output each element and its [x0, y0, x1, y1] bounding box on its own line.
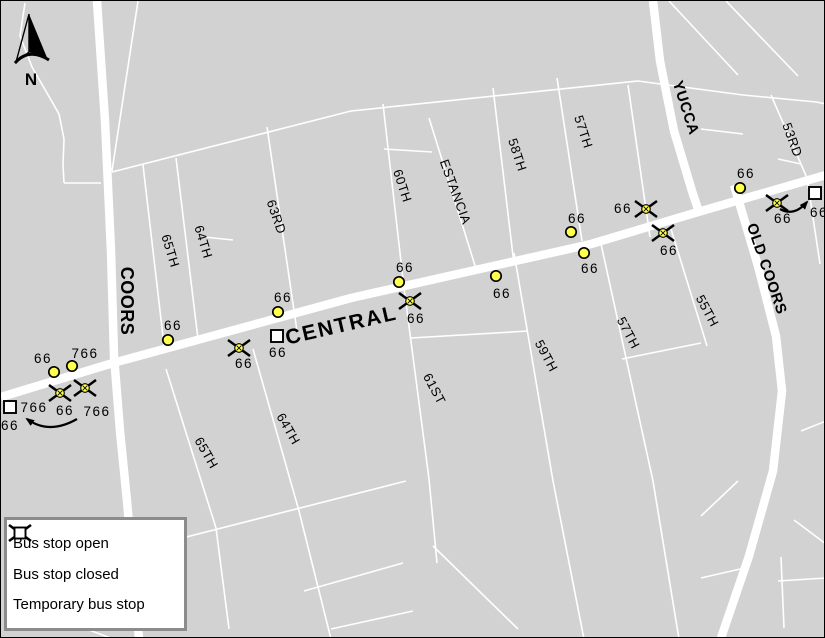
- route-label: 66: [274, 290, 292, 305]
- route-label: 66: [407, 311, 425, 326]
- bus-stop-temporary-marker: [809, 187, 821, 199]
- minor-street: [514, 253, 584, 638]
- legend-item-closed: Bus stop closed: [13, 566, 178, 583]
- route-label: 66: [774, 211, 792, 226]
- route-label: 66: [396, 260, 414, 275]
- minor-street: [778, 159, 801, 164]
- bus-stop-closed-marker: [74, 380, 96, 396]
- bus-stop-open-marker: [735, 183, 745, 193]
- bus-stop-open-marker: [566, 227, 576, 237]
- bus-stop-closed-marker: [228, 340, 250, 356]
- legend-label-temporary: Temporary bus stop: [13, 596, 145, 613]
- bus-stop-temporary-marker: [271, 330, 283, 342]
- street-label: 65TH: [158, 233, 182, 270]
- route-label: 766: [71, 346, 98, 361]
- legend-label-closed: Bus stop closed: [13, 566, 119, 583]
- route-label: 66: [235, 356, 253, 371]
- route-label: 66: [737, 166, 755, 181]
- minor-street: [304, 563, 403, 591]
- street-label: 59TH: [532, 337, 561, 374]
- legend-item-open: Bus stop open: [13, 535, 178, 552]
- bus-stop-open-marker: [163, 335, 173, 345]
- minor-street: [176, 158, 198, 339]
- bus-stop-open-marker: [491, 271, 501, 281]
- bus-stop-closed-marker: [399, 293, 421, 309]
- minor-street: [726, 1, 798, 76]
- street-label: 57TH: [614, 314, 643, 351]
- minor-street: [112, 1, 138, 171]
- minor-street: [669, 1, 738, 75]
- minor-street: [781, 557, 784, 628]
- street-label: 53RD: [779, 121, 805, 159]
- bus-stop-closed-marker: [766, 195, 788, 211]
- minor-street: [433, 546, 518, 629]
- street-label: 61ST: [420, 371, 449, 407]
- temporary-bus-stop-icon: [7, 520, 33, 546]
- legend: Bus stop open Bus stop closed Temporary …: [4, 517, 187, 631]
- bus-stop-open-marker: [49, 367, 59, 377]
- street-label: 64TH: [273, 410, 303, 447]
- route-label: 766: [20, 400, 47, 415]
- minor-street: [151, 481, 406, 546]
- minor-street: [253, 349, 331, 638]
- minor-street: [384, 149, 432, 152]
- route-label: 66: [493, 286, 511, 301]
- north-arrow: N: [1, 1, 56, 91]
- route-label: 66: [614, 201, 632, 216]
- route-label: 66: [269, 345, 287, 360]
- street-label: 55TH: [693, 292, 722, 329]
- minor-street: [601, 244, 679, 638]
- minor-street: [794, 520, 825, 544]
- minor-street: [331, 611, 413, 629]
- minor-street: [701, 481, 738, 516]
- minor-street: [411, 331, 528, 338]
- route-label: 66: [568, 211, 586, 226]
- minor-street: [143, 165, 164, 345]
- north-label: N: [25, 70, 37, 89]
- bus-stop-temporary-marker: [4, 401, 16, 413]
- route-label: 66: [810, 205, 825, 220]
- street-label: COORS: [117, 267, 137, 336]
- street-label: ESTANCIA: [437, 157, 474, 226]
- bus-stop-open-marker: [579, 248, 589, 258]
- bus-stop-open-marker: [273, 307, 283, 317]
- street-label: 63RD: [264, 198, 290, 236]
- street-label: 58TH: [505, 136, 530, 173]
- bus-stop-open-marker: [67, 361, 77, 371]
- route-label: 66: [164, 318, 182, 333]
- street-label: 57TH: [571, 113, 596, 150]
- legend-item-temporary: Temporary bus stop: [13, 596, 178, 613]
- route-label: 66: [56, 403, 74, 418]
- relocation-arrow-west: [27, 419, 77, 427]
- minor-street: [701, 129, 743, 134]
- minor-street: [778, 578, 825, 581]
- minor-street: [493, 88, 514, 264]
- minor-street: [801, 421, 825, 431]
- minor-street: [112, 81, 825, 172]
- major-street-old-coors: [721, 185, 782, 638]
- route-label: 66: [660, 243, 678, 258]
- bus-stop-closed-marker: [652, 225, 674, 241]
- bus-stop-closed-marker: [49, 385, 71, 401]
- route-label: 66: [34, 351, 52, 366]
- street-label: 64TH: [191, 224, 215, 261]
- bus-stop-open-marker: [394, 277, 404, 287]
- route-label: 66: [1, 418, 19, 433]
- route-label: 66: [581, 261, 599, 276]
- bus-stop-map: COORSCENTRALYUCCAOLD COORS65TH64TH63RD60…: [0, 0, 825, 638]
- route-label: 766: [83, 404, 110, 419]
